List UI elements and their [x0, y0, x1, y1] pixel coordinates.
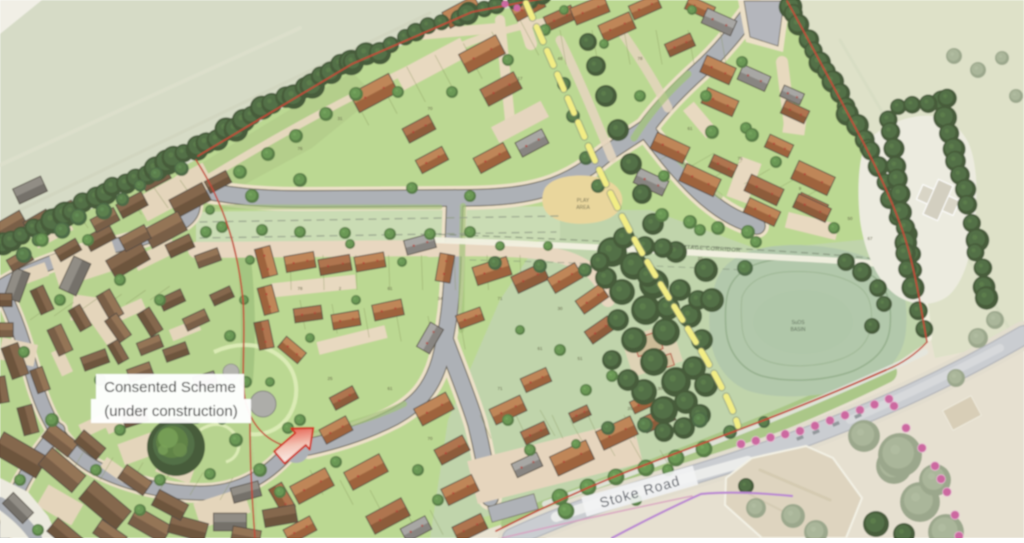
svg-text:PLAY: PLAY	[577, 198, 590, 204]
svg-text:48: 48	[557, 56, 563, 61]
svg-text:25: 25	[327, 376, 333, 381]
svg-text:70: 70	[427, 436, 433, 441]
svg-text:Consented Scheme: Consented Scheme	[104, 379, 236, 396]
svg-text:76: 76	[297, 146, 303, 151]
svg-text:30: 30	[557, 306, 563, 311]
svg-text:31: 31	[337, 116, 343, 121]
svg-text:71: 71	[497, 386, 503, 391]
svg-text:51: 51	[577, 356, 583, 361]
svg-text:78: 78	[637, 56, 643, 61]
svg-text:SuDS: SuDS	[791, 320, 805, 326]
svg-text:34: 34	[437, 296, 443, 301]
svg-text:61: 61	[387, 286, 393, 291]
svg-text:61: 61	[687, 126, 693, 131]
svg-text:(under construction): (under construction)	[104, 403, 237, 420]
svg-text:BASIN: BASIN	[790, 327, 805, 333]
svg-text:17: 17	[517, 76, 523, 81]
svg-text:70: 70	[427, 106, 433, 111]
svg-text:61: 61	[537, 346, 543, 351]
svg-text:20: 20	[697, 256, 703, 261]
svg-text:67: 67	[867, 236, 873, 241]
svg-text:20: 20	[627, 406, 633, 411]
svg-text:AREA: AREA	[576, 205, 590, 211]
svg-text:30: 30	[657, 386, 663, 391]
svg-text:78: 78	[297, 286, 303, 291]
svg-text:75: 75	[737, 156, 743, 161]
svg-text:61: 61	[387, 386, 393, 391]
svg-text:71: 71	[497, 296, 503, 301]
svg-text:50: 50	[847, 216, 853, 221]
